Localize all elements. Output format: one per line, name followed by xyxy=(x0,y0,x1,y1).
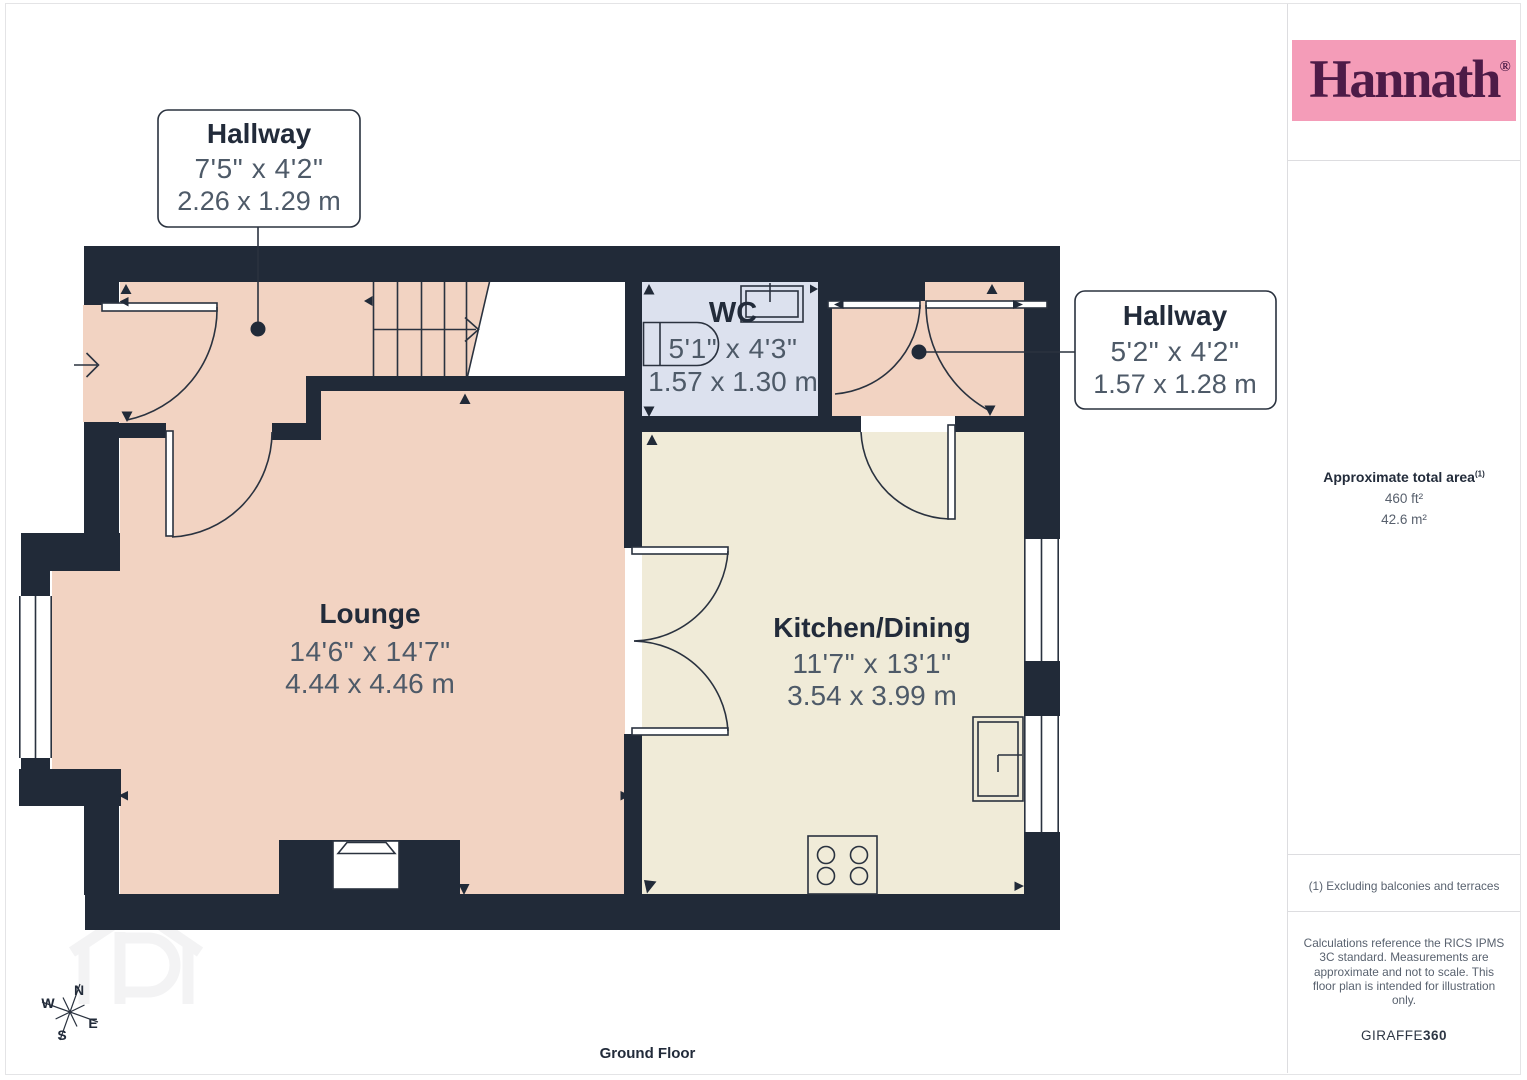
svg-text:N: N xyxy=(74,982,84,998)
svg-text:14'6" x 14'7": 14'6" x 14'7" xyxy=(289,636,450,667)
svg-text:S: S xyxy=(57,1027,66,1043)
svg-text:E: E xyxy=(88,1015,97,1031)
svg-text:Lounge: Lounge xyxy=(319,598,420,629)
svg-text:Hallway: Hallway xyxy=(1123,300,1228,331)
svg-text:Hallway: Hallway xyxy=(207,118,312,149)
svg-text:1.57 x 1.30 m: 1.57 x 1.30 m xyxy=(648,366,818,397)
svg-text:11'7" x 13'1": 11'7" x 13'1" xyxy=(792,648,951,679)
svg-text:W: W xyxy=(41,995,55,1011)
svg-text:2.26 x 1.29 m: 2.26 x 1.29 m xyxy=(177,186,341,216)
svg-text:5'2" x 4'2": 5'2" x 4'2" xyxy=(1110,336,1239,367)
svg-text:4.44 x 4.46 m: 4.44 x 4.46 m xyxy=(285,668,455,699)
svg-text:1.57 x 1.28 m: 1.57 x 1.28 m xyxy=(1093,369,1257,399)
svg-text:5'1" x 4'3": 5'1" x 4'3" xyxy=(668,333,797,364)
svg-text:Kitchen/Dining: Kitchen/Dining xyxy=(773,612,971,643)
svg-text:WC: WC xyxy=(709,297,757,329)
svg-text:3.54 x 3.99 m: 3.54 x 3.99 m xyxy=(787,680,957,711)
svg-text:7'5" x 4'2": 7'5" x 4'2" xyxy=(194,153,323,184)
